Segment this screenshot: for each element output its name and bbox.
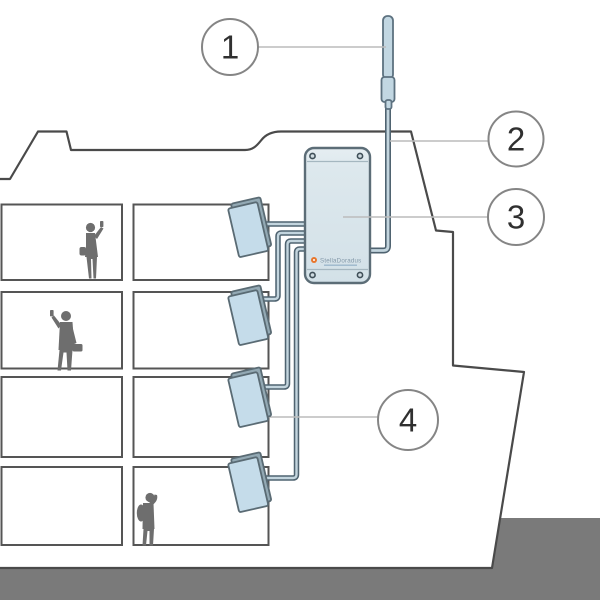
screw-icon	[310, 272, 315, 277]
diagram-canvas: StellaDoradus 1 2 3 4	[0, 0, 600, 600]
screw-icon	[357, 153, 362, 158]
cabin-room	[2, 205, 123, 281]
callout-4: 4	[378, 390, 438, 450]
callout-2-number: 2	[507, 121, 525, 158]
cabin-room	[2, 377, 123, 457]
logo-starburst-core	[313, 259, 315, 261]
callout-2: 2	[489, 112, 544, 167]
cabin-room	[2, 467, 123, 545]
screw-icon	[310, 153, 315, 158]
external-antenna	[382, 16, 395, 109]
callout-1-number: 1	[221, 29, 239, 66]
signal-repeater-diagram: StellaDoradus 1 2 3 4	[0, 0, 600, 600]
callout-3-number: 3	[507, 199, 525, 236]
brand-tagline	[324, 265, 357, 266]
brand-text: StellaDoradus	[320, 258, 361, 265]
callout-3: 3	[488, 189, 544, 245]
callout-1: 1	[202, 19, 258, 75]
repeater-box: StellaDoradus	[305, 148, 370, 283]
screw-icon	[357, 272, 362, 277]
callout-4-number: 4	[399, 402, 417, 439]
